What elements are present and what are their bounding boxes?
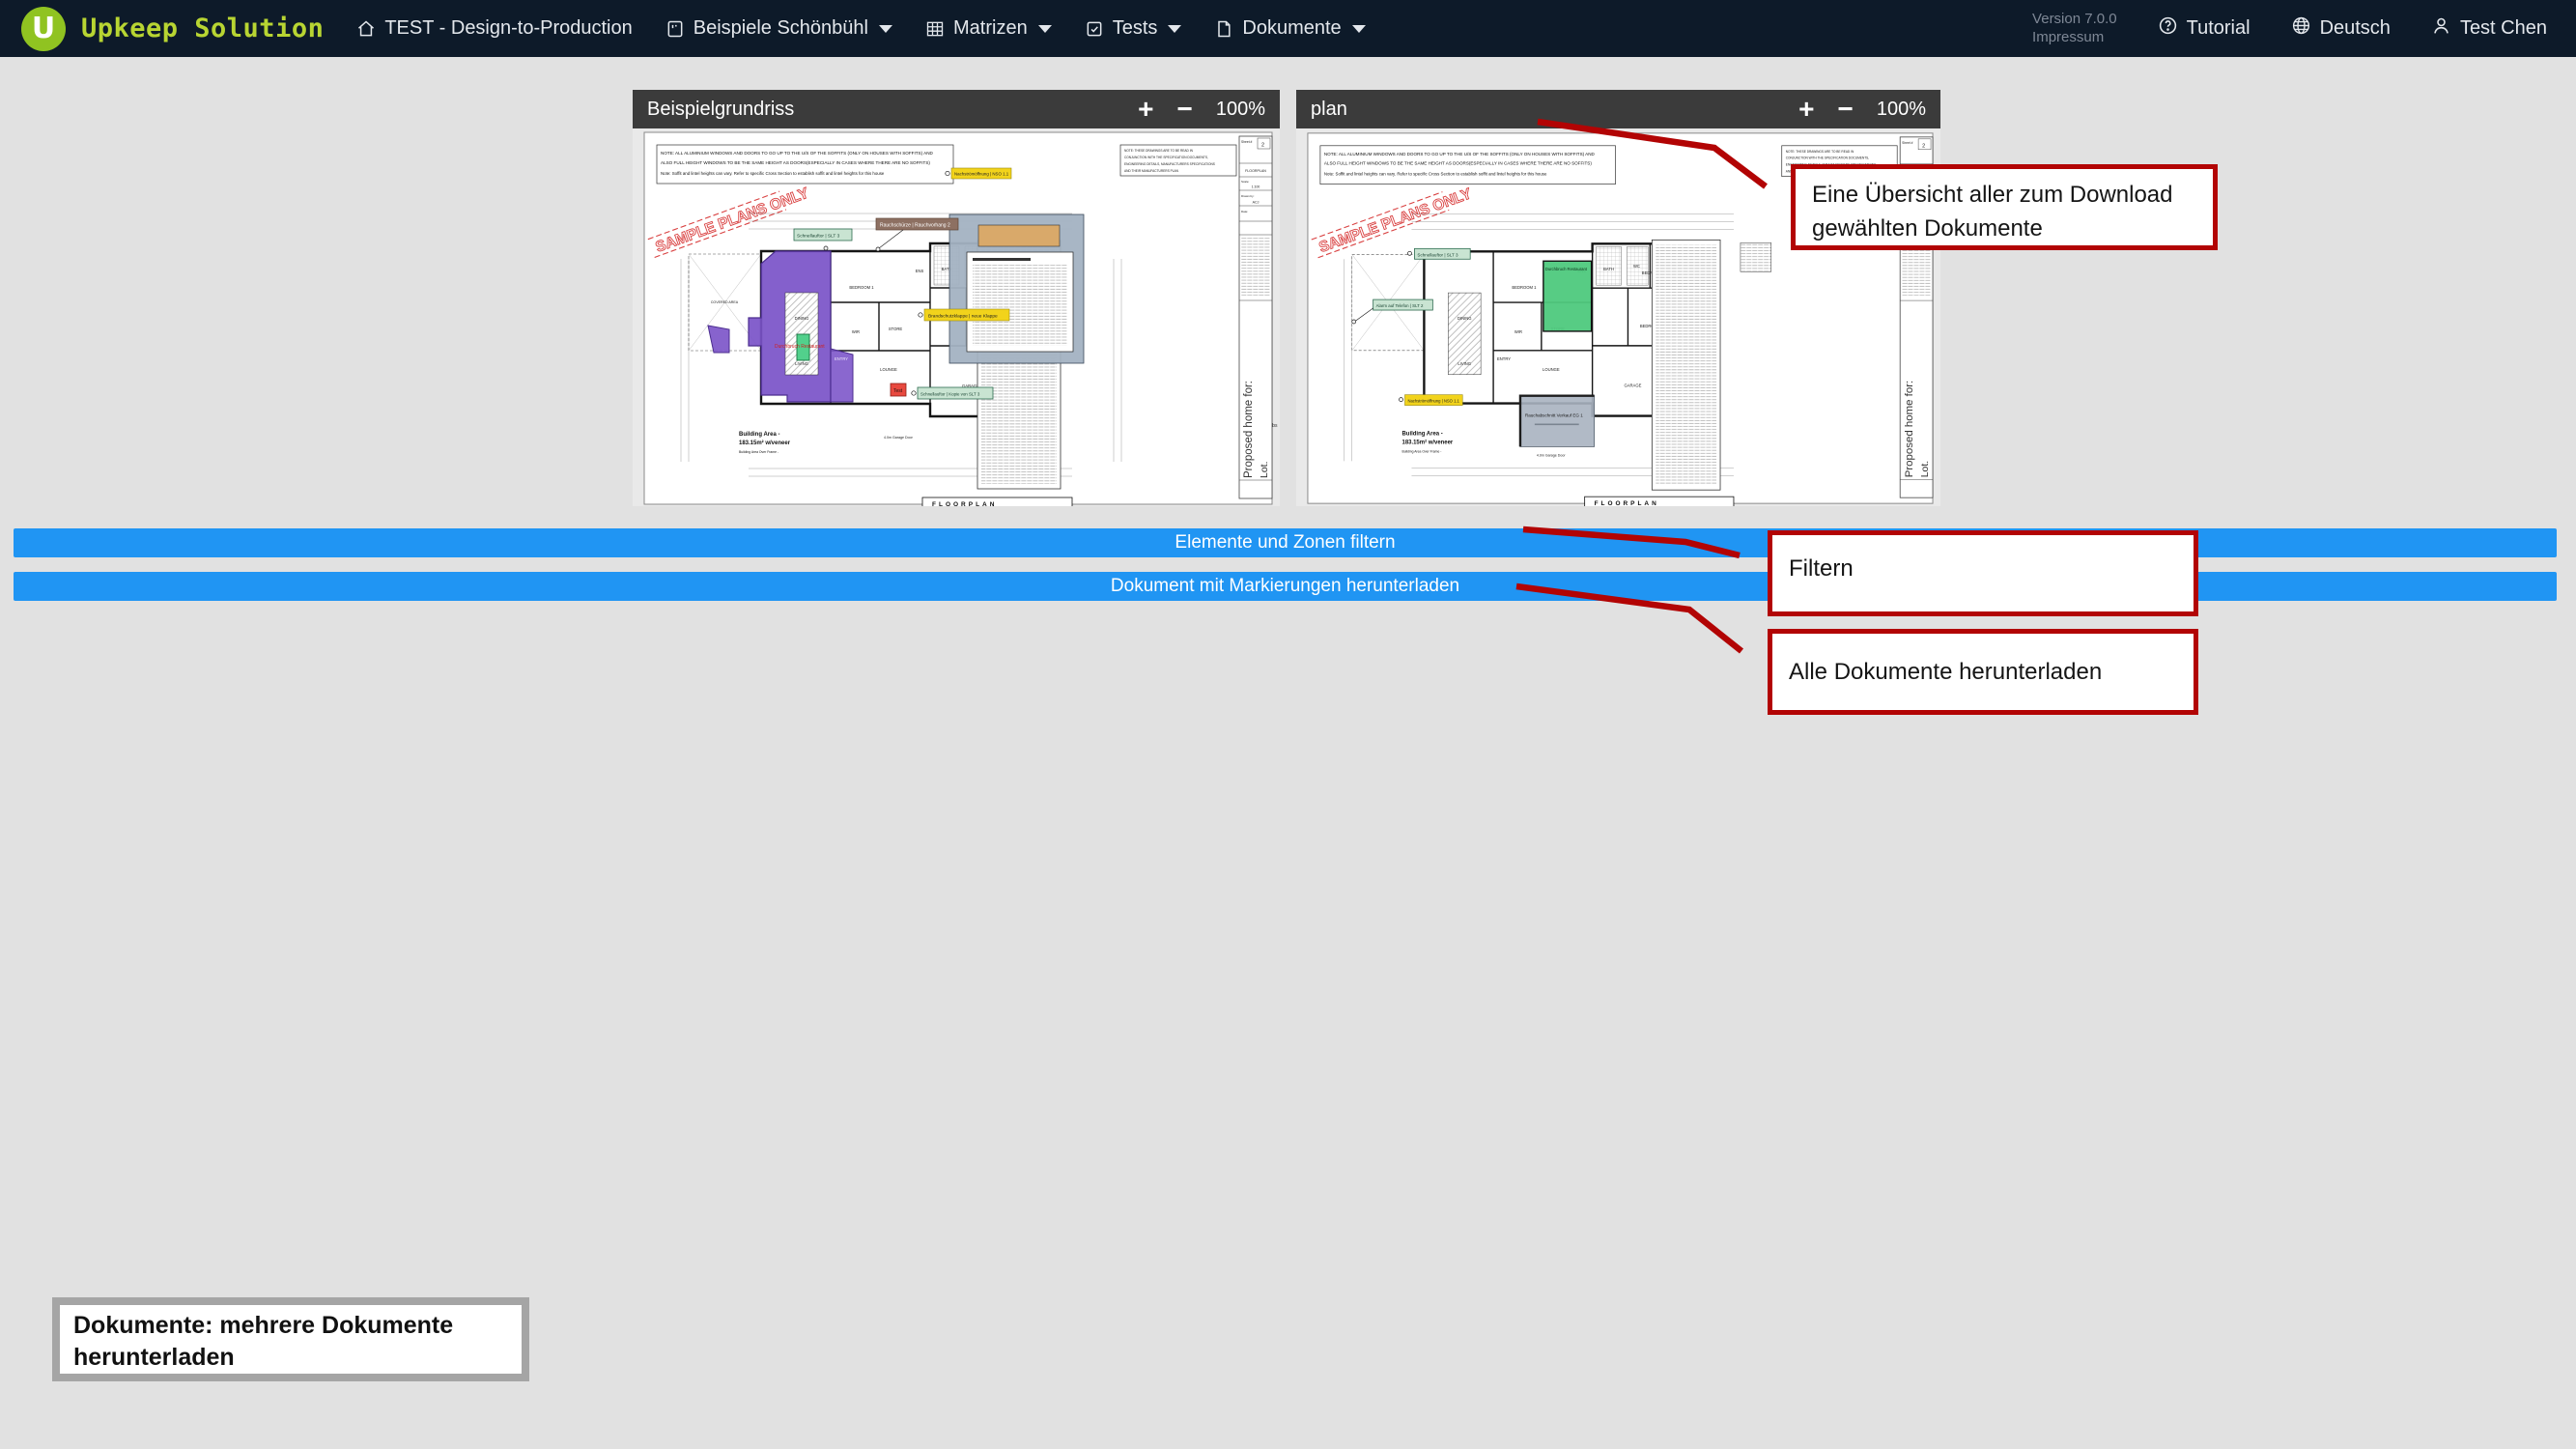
floorplan-drawing-left: NOTE: ALL ALUMINIUM WINDOWS AND DOORS TO… — [633, 128, 1280, 506]
globe-icon — [2291, 15, 2311, 42]
chevron-down-icon — [1038, 25, 1052, 33]
svg-text:NOTE: ALL ALUMINIUM WINDOWS AN: NOTE: ALL ALUMINIUM WINDOWS AND DOORS TO… — [661, 151, 934, 156]
impressum-link[interactable]: Impressum — [2032, 29, 2117, 47]
svg-text:Date:: Date: — [1241, 210, 1248, 213]
nav-item-documents[interactable]: Dokumente — [1214, 17, 1365, 40]
svg-text:ENTRY: ENTRY — [835, 356, 848, 361]
user-menu[interactable]: Test Chen — [2431, 15, 2547, 42]
svg-text:WIR: WIR — [852, 329, 860, 334]
svg-text:ENGINEERING DETAILS, MANUFACTU: ENGINEERING DETAILS, MANUFACTURERS SPECI… — [1124, 162, 1215, 166]
tutorial-label: Tutorial — [2187, 17, 2250, 40]
viewer-left: Beispielgrundriss + − 100% — [633, 90, 1280, 506]
marker-slt3-copy: Schnellauftor | Kopie von SLT 3 — [920, 392, 980, 397]
language-label: Deutsch — [2320, 17, 2391, 40]
svg-text:COVERED AREA: COVERED AREA — [711, 300, 739, 304]
svg-text:GARAGE: GARAGE — [1625, 384, 1642, 388]
svg-text:4.0m Garage Door: 4.0m Garage Door — [884, 436, 914, 440]
svg-text:FLOORPLAN: FLOORPLAN — [932, 501, 997, 506]
marker-slt3: Schnellauftor | SLT 3 — [797, 234, 840, 240]
chevron-down-icon — [879, 25, 892, 33]
brand-logo: U — [21, 7, 66, 51]
svg-text:Drawn by:: Drawn by: — [1241, 194, 1255, 198]
zoom-in-button[interactable]: + — [1798, 96, 1814, 123]
svg-text:Building Area -: Building Area - — [1402, 431, 1443, 437]
zone-green: Durchbruch Restaurant — [1543, 261, 1592, 331]
svg-text:AND THEIR MANUFACTURERS PLAN: AND THEIR MANUFACTURERS PLAN — [1124, 169, 1179, 173]
viewer-right-header: plan + − 100% — [1296, 90, 1940, 128]
nav-item-tests[interactable]: Tests — [1085, 17, 1182, 40]
viewer-title: Beispielgrundriss — [647, 99, 794, 121]
zone-label-durchbruch: Durchbruch Restaurant — [775, 344, 825, 350]
plan-note-topright: NOTE: THESE DRAWINGS ARE TO BE READ IN C… — [1120, 145, 1236, 176]
nav-item-label: Dokumente — [1242, 17, 1341, 40]
marker-nso: Nachströmöffnung | NSO 1.1 — [1407, 399, 1459, 404]
svg-text:Lot.: Lot. — [1920, 461, 1931, 477]
svg-text:LOUNGE: LOUNGE — [1543, 367, 1560, 372]
caption-box: Dokumente: mehrere Dokumente herunterlad… — [52, 1297, 529, 1381]
marker-brandschutzklappe: Brandschutzklappe | neue Klappe — [928, 314, 998, 320]
svg-text:DINING: DINING — [795, 316, 809, 321]
site-plan-icon — [665, 19, 685, 39]
zoom-in-button[interactable]: + — [1138, 96, 1153, 123]
marker-rauchschuerze: Rauchschürze | Rauchvorhang 2 — [880, 223, 950, 229]
svg-text:Note: Soffit and lintel height: Note: Soffit and lintel heights can vary… — [661, 171, 885, 176]
nav-item-project-home[interactable]: TEST - Design-to-Production — [356, 17, 632, 40]
viewer-right: plan + − 100% — [1296, 90, 1940, 506]
svg-text:1:100: 1:100 — [1252, 185, 1260, 189]
user-icon — [2431, 15, 2451, 42]
svg-text:Building Area -: Building Area - — [739, 432, 779, 438]
zoom-out-button[interactable]: − — [1176, 96, 1192, 123]
svg-text:LOUNGE: LOUNGE — [880, 367, 897, 372]
svg-text:Proposed home for:: Proposed home for: — [1243, 381, 1255, 478]
svg-text:LIVING: LIVING — [795, 361, 808, 366]
home-icon — [356, 19, 376, 39]
svg-text:2: 2 — [1922, 143, 1925, 149]
nav-item-matrices[interactable]: Matrizen — [925, 17, 1052, 40]
overlay-card — [949, 214, 1084, 363]
svg-text:ALSO FULL HEIGHT WINDOWS TO BE: ALSO FULL HEIGHT WINDOWS TO BE THE SAME … — [1324, 161, 1592, 166]
zoom-level: 100% — [1216, 99, 1265, 121]
user-name: Test Chen — [2460, 17, 2547, 40]
svg-text:ENTRY: ENTRY — [1497, 356, 1511, 361]
nav-item-project[interactable]: Beispiele Schönbühl — [665, 17, 892, 40]
brand-name: Upkeep Solution — [81, 14, 324, 43]
svg-text:Lot.: Lot. — [1259, 461, 1270, 478]
svg-text:NOTE: ALL ALUMINIUM WINDOWS AN: NOTE: ALL ALUMINIUM WINDOWS AND DOORS TO… — [1324, 152, 1596, 156]
svg-text:LIVING: LIVING — [1458, 361, 1471, 366]
checklist-icon — [1085, 19, 1104, 39]
chevron-down-icon — [1352, 25, 1366, 33]
tutorial-button[interactable]: Tutorial — [2158, 15, 2250, 42]
svg-text:FLOORPLAN: FLOORPLAN — [1595, 500, 1659, 506]
version-block: Version 7.0.0 Impressum — [2032, 11, 2117, 47]
svg-text:BEDROOM 1: BEDROOM 1 — [1512, 285, 1537, 290]
marker-slt3: Schnellauftor | SLT 3 — [1417, 252, 1458, 257]
callout-overview: Eine Übersicht aller zum Download gewähl… — [1791, 164, 2218, 250]
svg-text:2: 2 — [1261, 143, 1264, 149]
svg-text:NOTE: THESE DRAWINGS ARE TO BE: NOTE: THESE DRAWINGS ARE TO BE READ IN — [1786, 150, 1854, 154]
marker-test: Test — [893, 388, 903, 394]
title-block: Sheet # 2 FLOORPLAN Scale: 1:100 Drawn b… — [1239, 136, 1272, 498]
svg-text:BEDROOM 1: BEDROOM 1 — [849, 285, 874, 290]
document-icon — [1214, 19, 1233, 39]
callout-download-all: Alle Dokumente herunterladen — [1768, 629, 2198, 715]
logo-letter: U — [32, 12, 55, 45]
svg-text:Scale:: Scale: — [1241, 180, 1250, 184]
plan-canvas-left[interactable]: NOTE: ALL ALUMINIUM WINDOWS AND DOORS TO… — [633, 128, 1280, 506]
svg-text:ACJ: ACJ — [1253, 201, 1260, 205]
svg-text:WIR: WIR — [1514, 329, 1522, 334]
nav-item-label: Tests — [1113, 17, 1158, 40]
svg-text:ENS: ENS — [916, 269, 924, 273]
question-circle-icon — [2158, 15, 2178, 42]
nav-item-label: Matrizen — [953, 17, 1028, 40]
svg-text:WC: WC — [1633, 264, 1640, 269]
zone-label-rauch: Rauchabschnitt Verkauf EG 1 — [1525, 413, 1583, 418]
nav-item-label: Beispiele Schönbühl — [694, 17, 868, 40]
svg-text:ALSO FULL HEIGHT WINDOWS TO BE: ALSO FULL HEIGHT WINDOWS TO BE THE SAME … — [661, 160, 930, 165]
plan-note-topleft: NOTE: ALL ALUMINIUM WINDOWS AND DOORS TO… — [1320, 146, 1616, 185]
svg-text:FLOORPLAN: FLOORPLAN — [1245, 169, 1266, 173]
marker-nso: Nachströmöffnung | NSO 1.1 — [954, 172, 1009, 177]
matrix-grid-icon — [925, 19, 945, 39]
plan-note-topleft: NOTE: ALL ALUMINIUM WINDOWS AND DOORS TO… — [657, 145, 953, 184]
svg-text:Proposed home for:: Proposed home for: — [1904, 381, 1915, 477]
top-nav: U Upkeep Solution TEST - Design-to-Produ… — [0, 0, 2576, 57]
svg-text:DINING: DINING — [1458, 316, 1472, 321]
svg-text:Sheet #: Sheet # — [1902, 141, 1912, 145]
callout-filter: Filtern — [1768, 530, 2198, 616]
overlay-tan-block — [978, 225, 1060, 246]
zoom-level: 100% — [1877, 99, 1926, 121]
viewer-left-header: Beispielgrundriss + − 100% — [633, 90, 1280, 128]
svg-text:Building Area Over Frame -: Building Area Over Frame - — [739, 450, 778, 454]
svg-text:Building Area Over Frame -: Building Area Over Frame - — [1402, 449, 1442, 453]
viewer-title: plan — [1311, 99, 1347, 121]
svg-text:CONJUNCTION WITH THE SPECIFICA: CONJUNCTION WITH THE SPECIFICATION DOCUM… — [1124, 156, 1208, 159]
svg-text:BATH: BATH — [1603, 267, 1614, 271]
version-label: Version 7.0.0 — [2032, 11, 2117, 29]
app-window: U Upkeep Solution TEST - Design-to-Produ… — [0, 0, 2576, 1449]
svg-text:CONJUNCTION WITH THE SPECIFICA: CONJUNCTION WITH THE SPECIFICATION DOCUM… — [1786, 156, 1870, 160]
marker-alarm: Alarm auf Telefon | SLT 2 — [1376, 303, 1424, 308]
svg-text:Sheet #: Sheet # — [1241, 140, 1253, 144]
zone-label-durchbruch: Durchbruch Restaurant — [1545, 267, 1588, 271]
chevron-down-icon — [1168, 25, 1181, 33]
language-button[interactable]: Deutsch — [2291, 15, 2391, 42]
nav-item-label: TEST - Design-to-Production — [384, 17, 632, 40]
svg-text:183.15m² w/veneer: 183.15m² w/veneer — [739, 440, 791, 446]
svg-text:STORE: STORE — [889, 327, 903, 331]
svg-text:Note: Soffit and lintel height: Note: Soffit and lintel heights can vary… — [1324, 172, 1547, 177]
svg-text:4.0m Garage Door: 4.0m Garage Door — [1537, 453, 1566, 457]
brand-home-link[interactable]: U Upkeep Solution — [21, 7, 324, 51]
svg-text:NOTE: THESE DRAWINGS ARE TO BE: NOTE: THESE DRAWINGS ARE TO BE READ IN — [1124, 149, 1194, 153]
zoom-out-button[interactable]: − — [1837, 96, 1853, 123]
svg-text:183.15m² w/veneer: 183.15m² w/veneer — [1402, 439, 1454, 445]
